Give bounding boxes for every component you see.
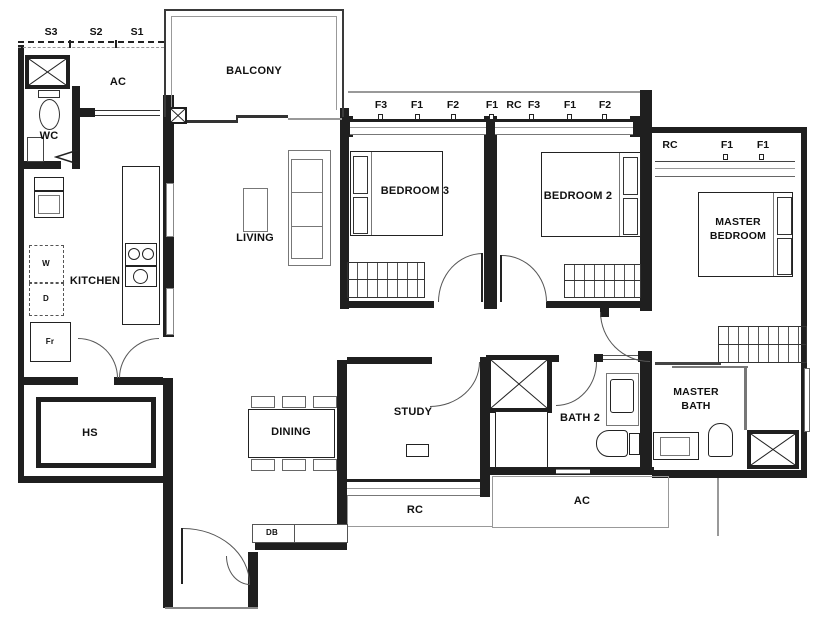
ac-condenser-x-box [25, 55, 70, 89]
wardrobe-bedroom3 [347, 262, 425, 298]
code-f3-bed3: F3 [375, 99, 387, 111]
floor-plan: BALCONY AC WC KITCHEN LIVING BEDROOM 3 B… [0, 0, 817, 623]
dining-chair [251, 459, 275, 471]
wall-left-exterior [18, 45, 24, 478]
door-leaf-bedroom2 [500, 255, 502, 302]
column-x-box [169, 107, 187, 124]
bath2-shower [495, 411, 548, 468]
window-code-tick [378, 114, 383, 120]
door-arc-bath2 [556, 362, 597, 406]
window-code-tick [723, 154, 728, 160]
pillow [353, 197, 368, 234]
pillow [777, 238, 792, 275]
wall-kitchen-bottom-right [114, 377, 163, 385]
wall-study-left [337, 360, 347, 550]
balcony-sliding-door-panel [236, 115, 288, 118]
door-arc-bedroom3 [438, 253, 483, 302]
window-code-tick [529, 114, 534, 120]
wardrobe-bedroom2 [564, 264, 641, 298]
kitchen-cabinet-inner [38, 195, 60, 214]
window-glass-line [495, 127, 633, 128]
masterbath-x-box [747, 430, 799, 469]
wc-toilet-tank [38, 90, 60, 98]
bath2-bottom-window [556, 469, 590, 474]
wall-bath-divider [640, 357, 652, 472]
wall-bedroom-divider [484, 116, 497, 309]
code-f1b-master: F1 [757, 139, 769, 151]
rc-ledge-top-line [348, 91, 640, 93]
balcony-parapet-inner-line [171, 16, 337, 110]
window-code-tick [567, 114, 572, 120]
bath2-toilet-tank [629, 433, 640, 455]
wall-bath2-hinge-stub [594, 354, 603, 362]
label-washer: W [42, 259, 50, 268]
masterbath-drip-line [717, 478, 719, 536]
code-rc-bed2: RC [506, 99, 521, 111]
room-label-kitchen: KITCHEN [70, 275, 120, 287]
balcony-sliding-door-panel [183, 120, 237, 123]
room-label-ac-upper: AC [110, 76, 126, 88]
window-band-study [347, 479, 480, 496]
kitchen-sliding-panel [166, 288, 174, 335]
window-code-tick [415, 114, 420, 120]
door-arc-bedroom2 [502, 255, 547, 302]
door-leaf-entrance [181, 528, 183, 584]
room-label-wc: WC [40, 130, 59, 142]
wardrobe-rail [719, 344, 806, 345]
door-leaf-bedroom3 [481, 253, 483, 302]
dining-chair [313, 459, 337, 471]
wall-study-top [347, 357, 432, 364]
room-label-dining: DINING [271, 426, 311, 438]
room-label-master-bath: MASTER BATH [670, 386, 722, 413]
window-band-master [655, 161, 795, 177]
door-arc-kitchen-left [78, 338, 118, 378]
sofa-cushion-line [291, 192, 323, 193]
wardrobe-master [718, 326, 807, 363]
cooktop-burner [128, 248, 140, 260]
kitchen-cabinet-line [34, 190, 64, 192]
masterbath-sink [660, 437, 690, 456]
label-dryer: D [43, 294, 49, 303]
room-label-hs: HS [82, 427, 98, 439]
room-label-master-bedroom: MASTER BEDROOM [706, 216, 770, 243]
wall-bedroom3-bottom [340, 301, 434, 308]
wall-masterbath-bottom [652, 470, 807, 478]
db-shelf-divider [294, 524, 295, 543]
wall-kitchen-bottom-left [23, 377, 78, 385]
masterbath-sliding-door [655, 362, 721, 365]
dining-chair [282, 396, 306, 408]
masterbath-toilet [708, 423, 733, 457]
ledge-tick [69, 40, 71, 48]
code-s1: S1 [131, 26, 144, 38]
window-code-tick [451, 114, 456, 120]
porch-threshold-line [165, 607, 258, 609]
label-rc-ledge: RC [407, 504, 423, 516]
window-band-bedroom3 [350, 119, 486, 135]
room-label-bath2: BATH 2 [560, 412, 600, 424]
kitchen-sliding-panel [166, 183, 174, 237]
room-label-study: STUDY [394, 406, 432, 418]
sofa-cushion-line [291, 226, 323, 227]
masterbath-side-window [804, 368, 810, 432]
study-desk [406, 444, 429, 457]
dining-chair [313, 396, 337, 408]
wall-bedroom2-bottom [546, 301, 652, 308]
sofa-cushions [291, 159, 323, 259]
pillow [353, 156, 368, 194]
code-s3: S3 [45, 26, 58, 38]
room-label-balcony: BALCONY [226, 65, 282, 77]
code-f2-bed3: F2 [447, 99, 459, 111]
code-s2: S2 [90, 26, 103, 38]
room-label-bedroom2: BEDROOM 2 [544, 190, 612, 202]
wardrobe-rail [565, 280, 640, 281]
window-glass-line [655, 168, 795, 169]
dining-chair [251, 396, 275, 408]
ledge-dashed-line [18, 41, 164, 44]
pillow [623, 157, 638, 195]
label-fridge: Fr [46, 337, 54, 346]
window-glass-line [350, 127, 486, 128]
cooktop-burner [142, 248, 154, 260]
coffee-table [243, 188, 268, 232]
bifold-door-icon [54, 147, 80, 167]
room-label-bedroom3: BEDROOM 3 [381, 185, 449, 197]
door-arc-study [430, 362, 480, 407]
balcony-sliding-door-joint [236, 115, 238, 123]
bed-headboard-line [619, 153, 620, 236]
wall-foyer-bottom [255, 542, 347, 550]
window-code-tick [602, 114, 607, 120]
shaft-x-box [486, 355, 552, 413]
code-f1-master: F1 [721, 139, 733, 151]
dining-chair [282, 459, 306, 471]
wall-lower-left [18, 476, 168, 483]
bath2-sink [610, 379, 634, 413]
label-ac-ledge: AC [574, 495, 590, 507]
ledge-dashed-line-inner [18, 47, 164, 49]
wc-toilet-bowl [39, 99, 60, 130]
wall-foyer-left [163, 378, 173, 608]
window-glass-line [347, 488, 480, 489]
code-f2-bed2: F2 [599, 99, 611, 111]
door-arc-kitchen-right [119, 338, 159, 378]
wall-master-top [652, 127, 807, 133]
kitchen-sink-bowl [133, 269, 148, 284]
code-f1b-bed2: F1 [564, 99, 576, 111]
bed-headboard-line [371, 152, 372, 235]
pillow [623, 198, 638, 235]
masterbath-shower-partition [744, 368, 747, 430]
code-rc-master: RC [662, 139, 677, 151]
wardrobe-rail [348, 279, 424, 280]
code-f3-bed2: F3 [528, 99, 540, 111]
window-band-bedroom2 [495, 119, 633, 135]
window-code-tick [759, 154, 764, 160]
bed-headboard-line [773, 193, 774, 276]
pillow [777, 197, 792, 235]
window-code-tick [489, 114, 494, 120]
wall-band-cap-right [630, 116, 652, 137]
code-f1-bed3: F1 [411, 99, 423, 111]
room-label-living: LIVING [236, 232, 274, 244]
bath2-toilet-bowl [596, 430, 628, 457]
label-db: DB [266, 528, 278, 537]
kitchen-top-window [95, 110, 160, 116]
masterbath-sliding-door-track [672, 366, 748, 368]
code-f1-bed2: F1 [486, 99, 498, 111]
balcony-window-sill [288, 118, 342, 120]
ledge-tick [115, 40, 117, 48]
